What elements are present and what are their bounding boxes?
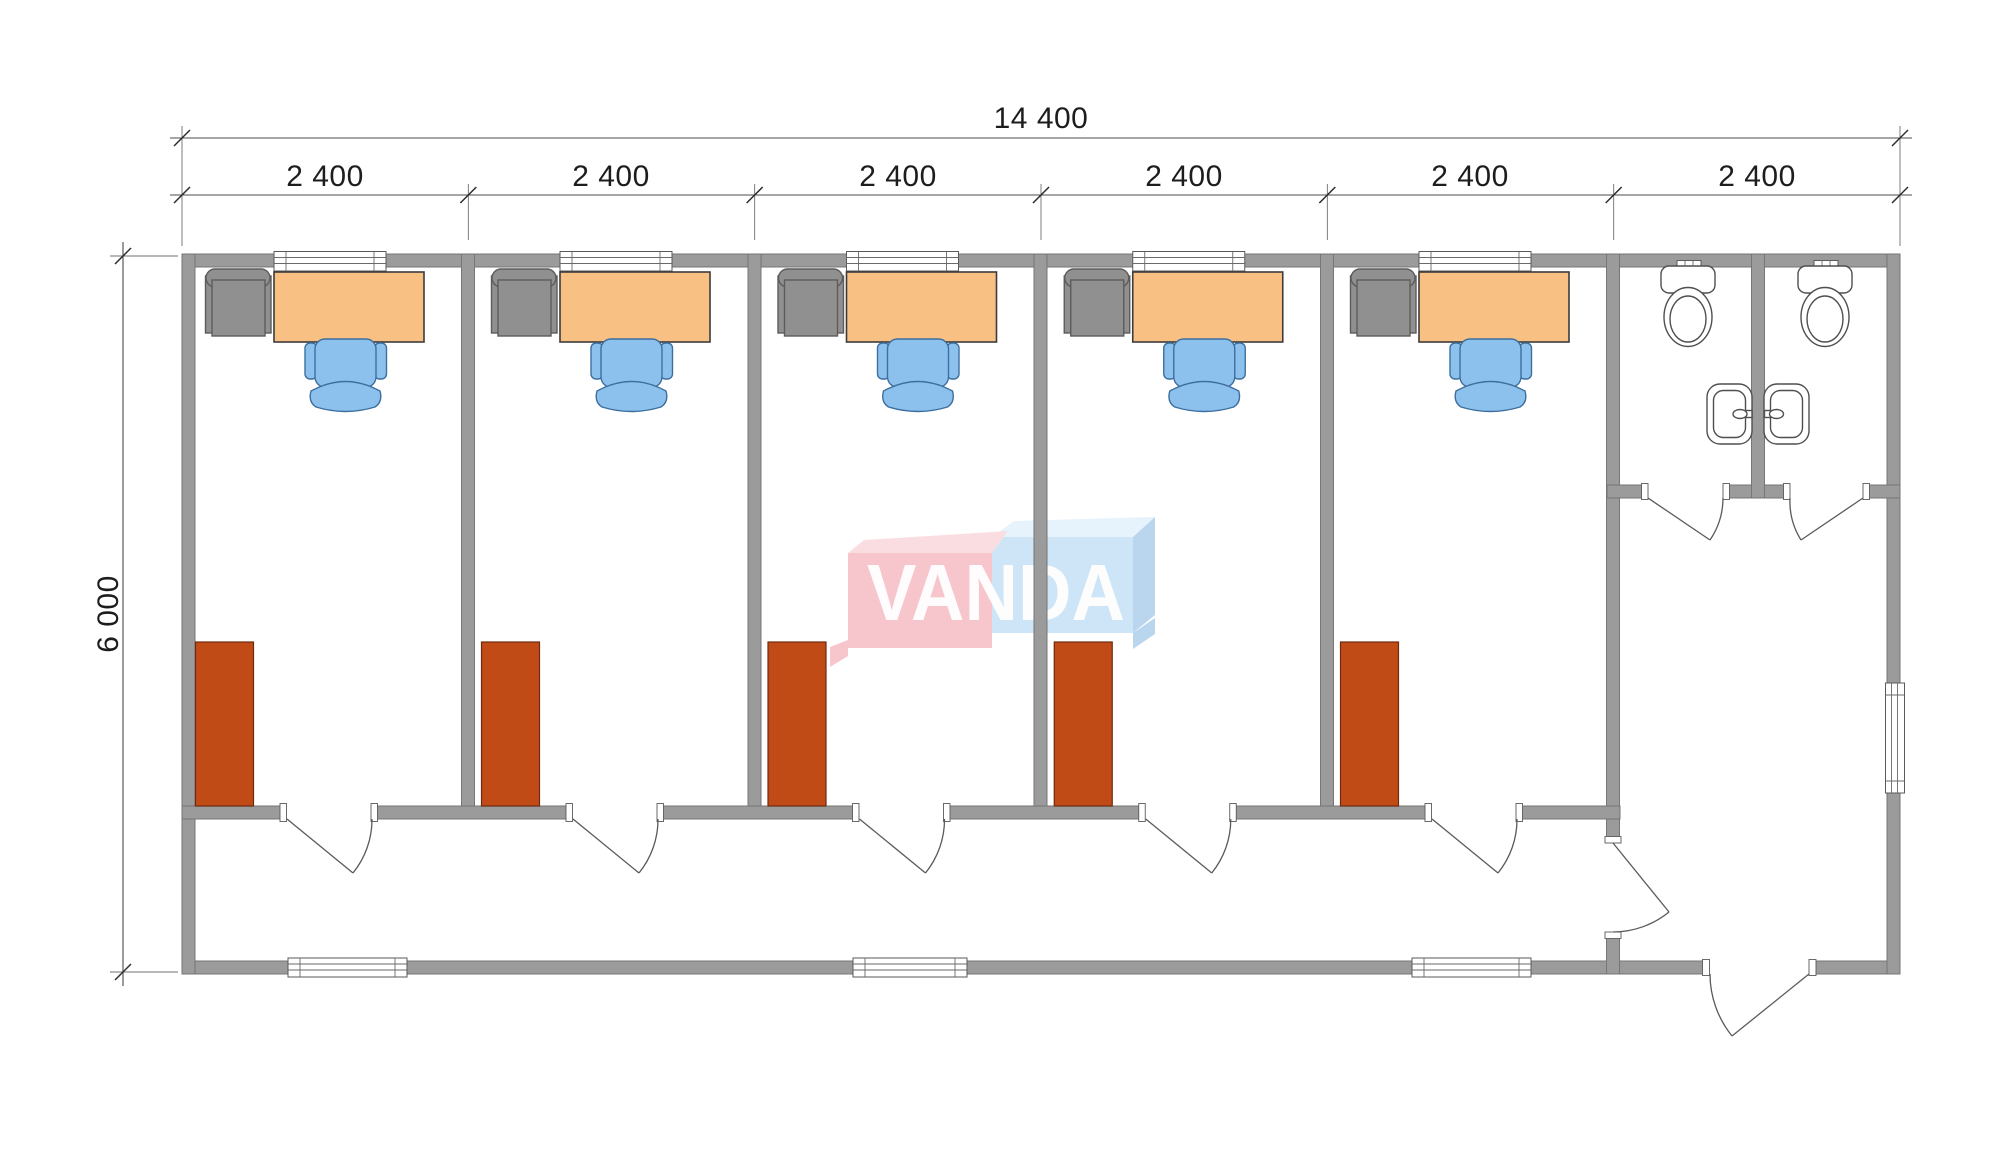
washbasin-right xyxy=(1764,384,1809,444)
lobby-door-opening xyxy=(1605,837,1621,939)
dim-bay-5-label: 2 400 xyxy=(1431,160,1509,193)
facade-window-3 xyxy=(1412,958,1531,977)
entrance-door xyxy=(1710,974,1809,1036)
office-bay-1 xyxy=(196,252,425,874)
facade-window-2 xyxy=(853,958,967,977)
toilet-left-stall xyxy=(1661,261,1715,347)
partition-3 xyxy=(1034,254,1047,819)
partition-2 xyxy=(748,254,761,819)
dim-overall-depth-label: 6 000 xyxy=(92,575,125,653)
logo-blue-top-face xyxy=(992,517,1155,537)
dim-bay-6-label: 2 400 xyxy=(1718,160,1796,193)
side-window xyxy=(1886,683,1905,793)
entrance-door-opening xyxy=(1703,960,1817,976)
washbasin-left xyxy=(1707,384,1752,444)
logo-blue-side-face xyxy=(1133,517,1155,633)
dim-bay-1-label: 2 400 xyxy=(286,160,364,193)
dim-overall-width-label: 14 400 xyxy=(994,102,1089,135)
partition-1 xyxy=(462,254,475,819)
office-bay-2 xyxy=(482,252,711,874)
logo-wordmark: VANDA xyxy=(867,548,1125,637)
wall-left xyxy=(182,254,195,974)
dim-overall-depth: 6 000 xyxy=(92,242,131,986)
wc-door-right xyxy=(1790,498,1863,540)
wc-door-left xyxy=(1648,498,1723,540)
office-bay-5 xyxy=(1341,252,1570,874)
dim-bay-2-label: 2 400 xyxy=(572,160,650,193)
wall-right xyxy=(1887,254,1900,974)
walls xyxy=(182,254,1900,974)
floor-plan-page: VANDA xyxy=(0,0,2000,1172)
dim-overall-width: 14 400 xyxy=(170,102,1912,146)
toilet-right-stall xyxy=(1798,261,1852,347)
dim-bay-3-label: 2 400 xyxy=(859,160,937,193)
logo-pink-fold xyxy=(830,640,848,667)
lobby-door xyxy=(1613,843,1669,932)
dim-bay-4-label: 2 400 xyxy=(1145,160,1223,193)
wall-wc-divider xyxy=(1752,254,1765,498)
facade-window-1 xyxy=(288,958,407,977)
partition-4 xyxy=(1320,254,1333,819)
wall-bottom xyxy=(182,961,1900,974)
